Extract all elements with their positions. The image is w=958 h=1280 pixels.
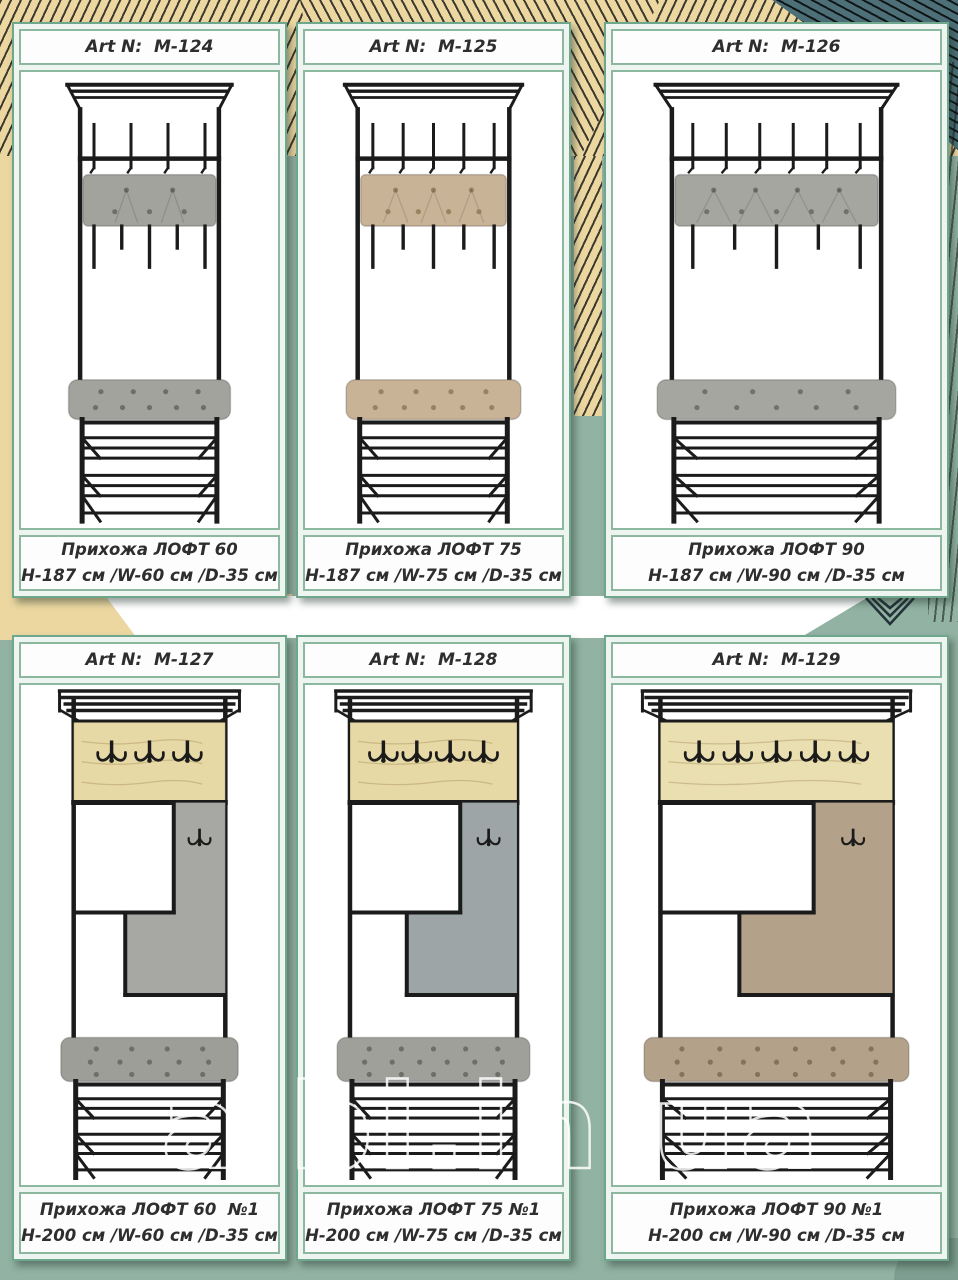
- product-caption: Прихожа ЛОФТ 90 №1 H-200 см /W-90 см /D-…: [611, 1192, 942, 1254]
- product-illustration: [305, 685, 562, 1185]
- background-white-band: [90, 596, 870, 638]
- product-caption: Прихожа ЛОФТ 90 H-187 см /W-90 см /D-35 …: [611, 535, 942, 591]
- product-dimensions: H-200 см /W-60 см /D-35 см: [21, 1223, 278, 1249]
- product-title: Прихожа ЛОФТ 75 №1: [327, 1197, 541, 1223]
- product-title: Прихожа ЛОФТ 75: [345, 537, 522, 563]
- product-caption: Прихожа ЛОФТ 75 №1 H-200 см /W-75 см /D-…: [303, 1192, 564, 1254]
- art-number-label: Art N: M-128: [303, 642, 564, 678]
- product-card: Art N: M-128 Прихожа ЛОФТ 75 №1 H-200 см…: [296, 635, 571, 1261]
- product-dimensions: H-187 см /W-90 см /D-35 см: [648, 563, 905, 589]
- product-caption: Прихожа ЛОФТ 60 №1 H-200 см /W-60 см /D-…: [19, 1192, 280, 1254]
- product-card: Art N: M-129 Прихожа ЛОФТ 90 №1 H-200 см…: [604, 635, 949, 1261]
- product-illustration: [21, 72, 278, 528]
- product-image: [303, 683, 564, 1187]
- product-image: [611, 70, 942, 530]
- product-dimensions: H-187 см /W-75 см /D-35 см: [305, 563, 562, 589]
- product-dimensions: H-187 см /W-60 см /D-35 см: [21, 563, 278, 589]
- product-image: [19, 70, 280, 530]
- product-title: Прихожа ЛОФТ 60 №1: [40, 1197, 259, 1223]
- chevron-down-icon: [862, 594, 918, 640]
- product-caption: Прихожа ЛОФТ 60 H-187 см /W-60 см /D-35 …: [19, 535, 280, 591]
- art-number-label: Art N: M-125: [303, 29, 564, 65]
- product-card: Art N: M-125 Прихожа ЛОФТ 75 H-187 см /W…: [296, 22, 571, 598]
- product-illustration: [305, 72, 562, 528]
- product-card: Art N: M-126 Прихожа ЛОФТ 90 H-187 см /W…: [604, 22, 949, 598]
- art-number-label: Art N: M-124: [19, 29, 280, 65]
- product-title: Прихожа ЛОФТ 90 №1: [670, 1197, 884, 1223]
- background-stripe-gap: [574, 156, 602, 416]
- product-dimensions: H-200 см /W-75 см /D-35 см: [305, 1223, 562, 1249]
- product-card: Art N: M-124 Прихожа ЛОФТ 60 H-187 см /W…: [12, 22, 287, 598]
- product-caption: Прихожа ЛОФТ 75 H-187 см /W-75 см /D-35 …: [303, 535, 564, 591]
- product-illustration: [613, 72, 940, 528]
- product-title: Прихожа ЛОФТ 90: [688, 537, 865, 563]
- product-title: Прихожа ЛОФТ 60: [61, 537, 238, 563]
- product-illustration: [613, 685, 940, 1185]
- product-image: [611, 683, 942, 1187]
- product-card: Art N: M-127 Прихожа ЛОФТ 60 №1 H-200 см…: [12, 635, 287, 1261]
- product-dimensions: H-200 см /W-90 см /D-35 см: [648, 1223, 905, 1249]
- product-image: [303, 70, 564, 530]
- art-number-label: Art N: M-126: [611, 29, 942, 65]
- art-number-label: Art N: M-127: [19, 642, 280, 678]
- product-image: [19, 683, 280, 1187]
- art-number-label: Art N: M-129: [611, 642, 942, 678]
- product-illustration: [21, 685, 278, 1185]
